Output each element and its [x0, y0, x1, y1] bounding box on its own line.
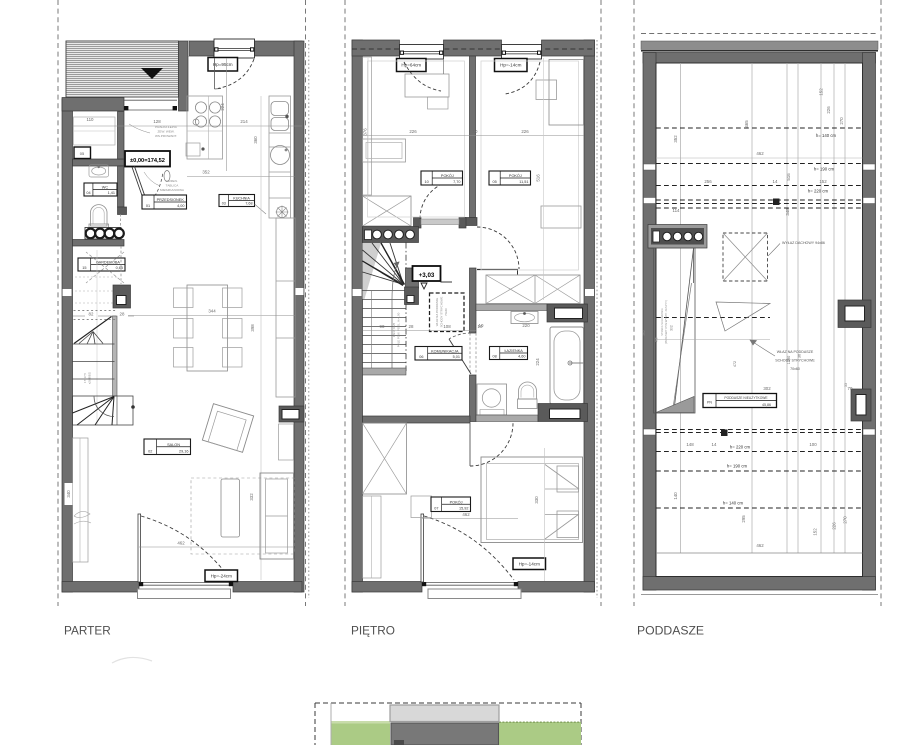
svg-text:WS.PROWADT.: WS.PROWADT. [155, 134, 177, 138]
svg-text:04: 04 [86, 191, 90, 195]
svg-text:+3,03: +3,03 [419, 272, 435, 279]
svg-text:220: 220 [522, 323, 530, 328]
svg-text:10: 10 [473, 129, 478, 134]
svg-text:214: 214 [240, 119, 248, 124]
svg-text:344: 344 [208, 309, 216, 314]
svg-text:PN: PN [707, 401, 712, 405]
svg-text:5,01: 5,01 [453, 355, 460, 359]
svg-text:ZEW. WEW.: ZEW. WEW. [157, 130, 174, 134]
svg-text:348: 348 [785, 208, 790, 216]
svg-text:4,00: 4,00 [177, 204, 184, 208]
svg-text:226: 226 [826, 106, 831, 114]
svg-text:36: 36 [798, 354, 802, 358]
svg-text:1,41: 1,41 [108, 191, 115, 195]
svg-text:152: 152 [819, 179, 827, 184]
svg-text:MIESZKANIOWA: MIESZKANIOWA [160, 188, 185, 192]
svg-text:224: 224 [535, 358, 540, 366]
svg-text:226: 226 [409, 129, 417, 134]
svg-text:398: 398 [250, 324, 255, 332]
svg-text:114: 114 [673, 208, 681, 213]
svg-text:Hp=-14cm: Hp=-14cm [500, 63, 521, 68]
svg-text:152: 152 [813, 528, 818, 536]
svg-text:SALON: SALON [167, 443, 180, 447]
svg-text:295: 295 [741, 515, 746, 523]
svg-text:226: 226 [521, 129, 529, 134]
svg-text:x26 BIEG: x26 BIEG [88, 372, 92, 384]
svg-text:PRALKA ŁEPIA: PRALKA ŁEPIA [155, 125, 178, 129]
svg-text:0,65: 0,65 [116, 266, 123, 270]
svg-text:10: 10 [424, 180, 428, 184]
svg-text:10: 10 [479, 323, 484, 328]
svg-text:302: 302 [763, 386, 771, 391]
svg-text:02: 02 [148, 450, 152, 454]
svg-text:h= 190 cm: h= 190 cm [814, 167, 835, 172]
svg-text:256: 256 [704, 179, 712, 184]
svg-text:128: 128 [153, 119, 161, 124]
svg-text:06: 06 [419, 355, 423, 359]
svg-text:PODDASZE: PODDASZE [637, 624, 704, 638]
svg-text:h= 220 cm: h= 220 cm [730, 445, 751, 450]
svg-text:352: 352 [202, 170, 210, 175]
svg-text:462: 462 [756, 151, 764, 156]
svg-text:h= 190 cm: h= 190 cm [727, 464, 748, 469]
svg-text:376: 376 [363, 128, 368, 136]
svg-text:28: 28 [120, 312, 125, 317]
svg-text:POLE POW. PODL. H>1,90: POLE POW. PODL. H>1,90 [397, 312, 401, 347]
svg-text:KOMUNIKACJA: KOMUNIKACJA [431, 349, 459, 353]
svg-text:516: 516 [786, 173, 791, 181]
svg-text:70x60: 70x60 [790, 367, 800, 371]
svg-text:Hp=-24cm: Hp=-24cm [211, 573, 232, 578]
svg-text:h= 140 cm: h= 140 cm [816, 133, 837, 138]
svg-text:270: 270 [843, 516, 848, 524]
svg-text:PRZEN.: PRZEN. [166, 179, 177, 183]
svg-text:28: 28 [409, 324, 414, 329]
svg-text:h= 220 cm: h= 220 cm [808, 189, 829, 194]
svg-text:462: 462 [756, 543, 764, 548]
svg-text:WŁAZ NA PODDASZE: WŁAZ NA PODDASZE [435, 298, 439, 327]
svg-text:45,86: 45,86 [762, 403, 771, 407]
svg-text:70: 70 [848, 386, 853, 391]
svg-text:224: 224 [220, 103, 225, 111]
svg-text:POKÓJ: POKÓJ [450, 499, 463, 504]
svg-text:302: 302 [670, 325, 674, 331]
svg-text:Hp=-14cm: Hp=-14cm [519, 561, 540, 566]
svg-text:17x17,5: 17x17,5 [83, 373, 87, 383]
svg-text:TABLICA: TABLICA [166, 184, 180, 188]
svg-text:07: 07 [434, 507, 438, 511]
svg-text:PARTER: PARTER [64, 624, 111, 638]
svg-text:WŁAZ NA PODDASZE: WŁAZ NA PODDASZE [777, 350, 814, 354]
svg-text:14: 14 [773, 179, 778, 184]
svg-text:±0,00=174,52: ±0,00=174,52 [130, 158, 165, 164]
svg-text:POKÓJ: POKÓJ [441, 173, 454, 178]
svg-text:POKÓJ: POKÓJ [509, 173, 522, 178]
svg-text:148: 148 [686, 442, 694, 447]
svg-text:462: 462 [177, 541, 185, 546]
svg-text:152: 152 [819, 88, 824, 96]
svg-text:7,70: 7,70 [453, 180, 460, 184]
svg-text:05: 05 [80, 151, 85, 156]
svg-text:15: 15 [82, 266, 86, 270]
svg-text:03: 03 [222, 202, 226, 206]
svg-text:05: 05 [492, 180, 496, 184]
svg-text:ŁAZIENKA: ŁAZIENKA [504, 349, 523, 353]
svg-text:465: 465 [655, 337, 659, 343]
svg-text:340: 340 [66, 490, 71, 498]
svg-text:360: 360 [253, 136, 258, 144]
svg-text:140: 140 [673, 492, 678, 500]
svg-text:08: 08 [493, 355, 497, 359]
svg-text:29,16: 29,16 [179, 450, 189, 454]
svg-text:14: 14 [712, 442, 717, 447]
svg-text:516: 516 [536, 174, 541, 182]
svg-text:15,92: 15,92 [459, 507, 469, 511]
svg-text:7,68: 7,68 [245, 202, 252, 206]
svg-text:18x17,9x25: 18x17,9x25 [392, 322, 396, 337]
svg-text:WYŁAZ DACHOWY 94x86: WYŁAZ DACHOWY 94x86 [782, 241, 825, 245]
svg-text:1090: 1090 [787, 356, 791, 364]
svg-text:PRZEDSIONEK: PRZEDSIONEK [157, 198, 185, 202]
svg-text:WC: WC [102, 186, 109, 190]
svg-text:(PRZESWIT DYN.WYSTP. ZESZYT.): (PRZESWIT DYN.WYSTP. ZESZYT.) [664, 300, 668, 344]
svg-text:270: 270 [839, 117, 844, 125]
svg-text:462: 462 [462, 512, 470, 517]
svg-text:4,60: 4,60 [518, 355, 525, 359]
svg-text:352: 352 [673, 135, 678, 143]
svg-text:h= 140 cm: h= 140 cm [723, 501, 744, 506]
svg-text:90: 90 [380, 324, 385, 329]
svg-text:Hp=95cm: Hp=95cm [213, 62, 233, 67]
svg-text:70x60: 70x60 [444, 308, 448, 316]
svg-text:SCHODY STRYCHOWE: SCHODY STRYCHOWE [440, 296, 444, 327]
svg-text:362: 362 [642, 330, 646, 336]
svg-text:PIĘTRO: PIĘTRO [351, 624, 395, 638]
svg-text:226: 226 [832, 522, 837, 530]
svg-text:PODDASZE NIEUŻYTKOWE: PODDASZE NIEUŻYTKOWE [724, 395, 768, 400]
svg-text:100: 100 [809, 442, 817, 447]
svg-text:330: 330 [534, 496, 539, 504]
svg-text:465: 465 [744, 120, 749, 128]
svg-text:SCHODY STRYCHOWE: SCHODY STRYCHOWE [775, 359, 815, 363]
svg-text:82: 82 [89, 312, 94, 317]
svg-text:11,51: 11,51 [519, 180, 528, 184]
svg-text:332: 332 [249, 493, 254, 501]
svg-text:KUCHNIA: KUCHNIA [233, 197, 250, 201]
svg-text:01: 01 [146, 204, 150, 208]
svg-text:472: 472 [733, 361, 737, 367]
svg-text:STREFA SCHOWANIA: STREFA SCHOWANIA [660, 308, 664, 336]
svg-text:108: 108 [443, 324, 451, 329]
svg-text:110: 110 [87, 117, 95, 122]
